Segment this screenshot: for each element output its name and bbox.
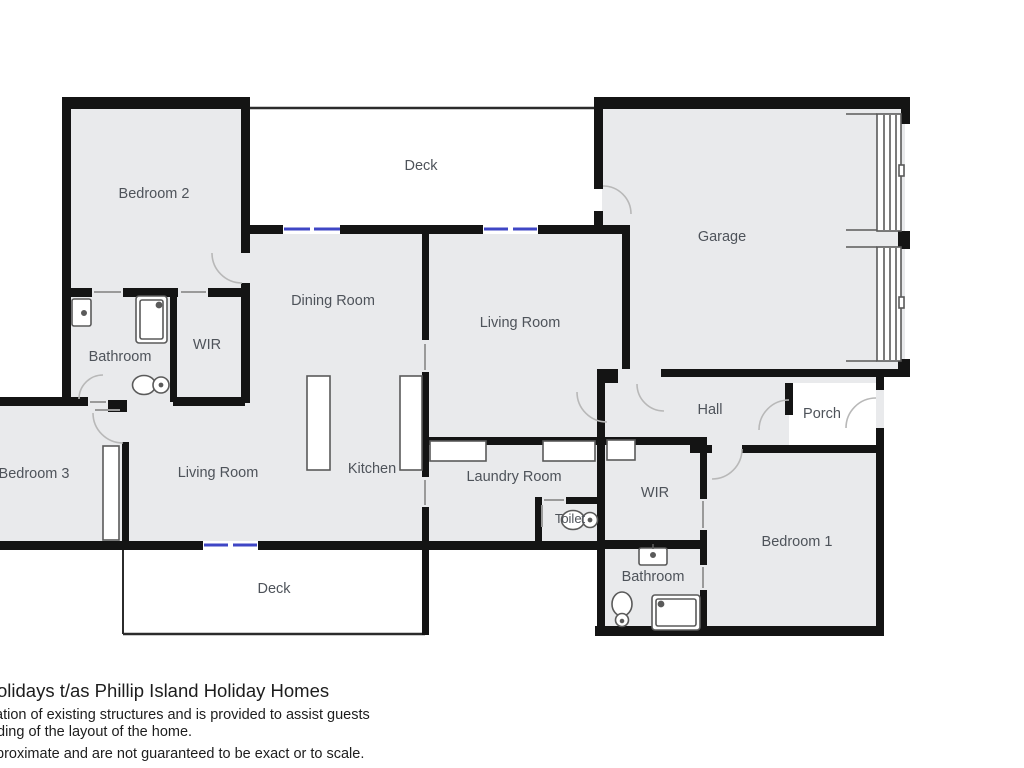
room-label-bedroom-1: Bedroom 1 (762, 534, 833, 550)
floorplan-page: Bedroom 2 Deck Garage Dining Room Living… (0, 0, 1024, 768)
sink-icon (72, 299, 91, 326)
wall-segment (0, 541, 203, 550)
wall-segment (170, 293, 177, 402)
wall-segment (876, 453, 884, 636)
shower-icon (652, 595, 700, 630)
wall-segment (901, 97, 910, 124)
wall-segment (173, 397, 245, 406)
wall-segment (594, 97, 910, 109)
room-label-deck-top: Deck (404, 158, 438, 174)
wall-segment (241, 97, 250, 232)
wall-segment (538, 225, 622, 234)
footer-disclaimer-line-1: ation of existing structures and is prov… (0, 707, 370, 723)
toilet-icon (612, 592, 632, 627)
room-label-living-room-lower: Living Room (178, 465, 259, 481)
shower-icon (136, 296, 167, 343)
wall-segment (876, 377, 884, 390)
floorplan-drawing: Bedroom 2 Deck Garage Dining Room Living… (0, 0, 1024, 660)
room-label-bedroom-2: Bedroom 2 (119, 186, 190, 202)
wall-segment (340, 225, 483, 234)
wall-segment (422, 372, 429, 477)
wall-segment (700, 437, 707, 499)
room-label-bedroom-3: Bedroom 3 (0, 466, 69, 482)
wall-segment (876, 428, 884, 445)
wall-segment (422, 507, 429, 543)
room-label-toilet: Toilet (555, 511, 586, 526)
wall-segment (0, 397, 88, 406)
wall-segment (622, 225, 630, 369)
wall-segment (62, 97, 71, 402)
wall-segment (71, 288, 92, 297)
closet-opening (607, 440, 635, 460)
wall-segment (785, 383, 793, 415)
wall-segment (700, 590, 707, 628)
wall-segment (594, 105, 603, 189)
room-label-hall: Hall (698, 402, 723, 418)
laundry-bench (543, 441, 595, 461)
room-label-deck-bottom: Deck (257, 581, 291, 597)
wall-segment (241, 225, 283, 234)
floor-garage (602, 105, 905, 371)
footer-disclaimer-line-3: proximate and are not guaranteed to be e… (0, 746, 364, 762)
footer-business-name: olidays t/as Phillip Island Holiday Home… (0, 680, 329, 702)
kitchen-counter (307, 376, 330, 470)
wall-segment (422, 549, 429, 635)
wall-segment (661, 369, 910, 377)
room-label-living-room-upper: Living Room (480, 315, 561, 331)
wall-segment (595, 626, 884, 636)
wall-segment (241, 232, 250, 253)
wall-segment (241, 283, 250, 403)
kitchen-counter (400, 376, 422, 470)
room-label-wir-lower: WIR (641, 485, 669, 501)
pocket-door (103, 446, 119, 540)
toilet-icon (133, 376, 170, 395)
wall-segment (742, 445, 884, 453)
footer-disclaimer-line-2: ding of the layout of the home. (0, 724, 192, 740)
wall-segment (597, 369, 605, 626)
wall-segment (594, 211, 603, 232)
wall-segment (700, 530, 707, 565)
room-label-dining-room: Dining Room (291, 293, 375, 309)
room-label-bathroom-lower: Bathroom (622, 569, 685, 585)
room-label-porch: Porch (803, 406, 841, 422)
wall-segment (422, 225, 429, 340)
room-label-kitchen: Kitchen (348, 461, 396, 477)
wall-segment (566, 497, 597, 504)
wall-segment (535, 497, 542, 547)
room-label-garage: Garage (698, 229, 746, 245)
wall-segment (62, 97, 250, 109)
room-label-laundry-room: Laundry Room (466, 469, 561, 485)
wall-segment (122, 442, 129, 543)
room-label-wir-upper: WIR (193, 337, 221, 353)
laundry-bench (430, 441, 486, 461)
room-label-bathroom-upper: Bathroom (89, 349, 152, 365)
wall-segment (208, 288, 245, 297)
floor-dining-living (246, 229, 626, 403)
